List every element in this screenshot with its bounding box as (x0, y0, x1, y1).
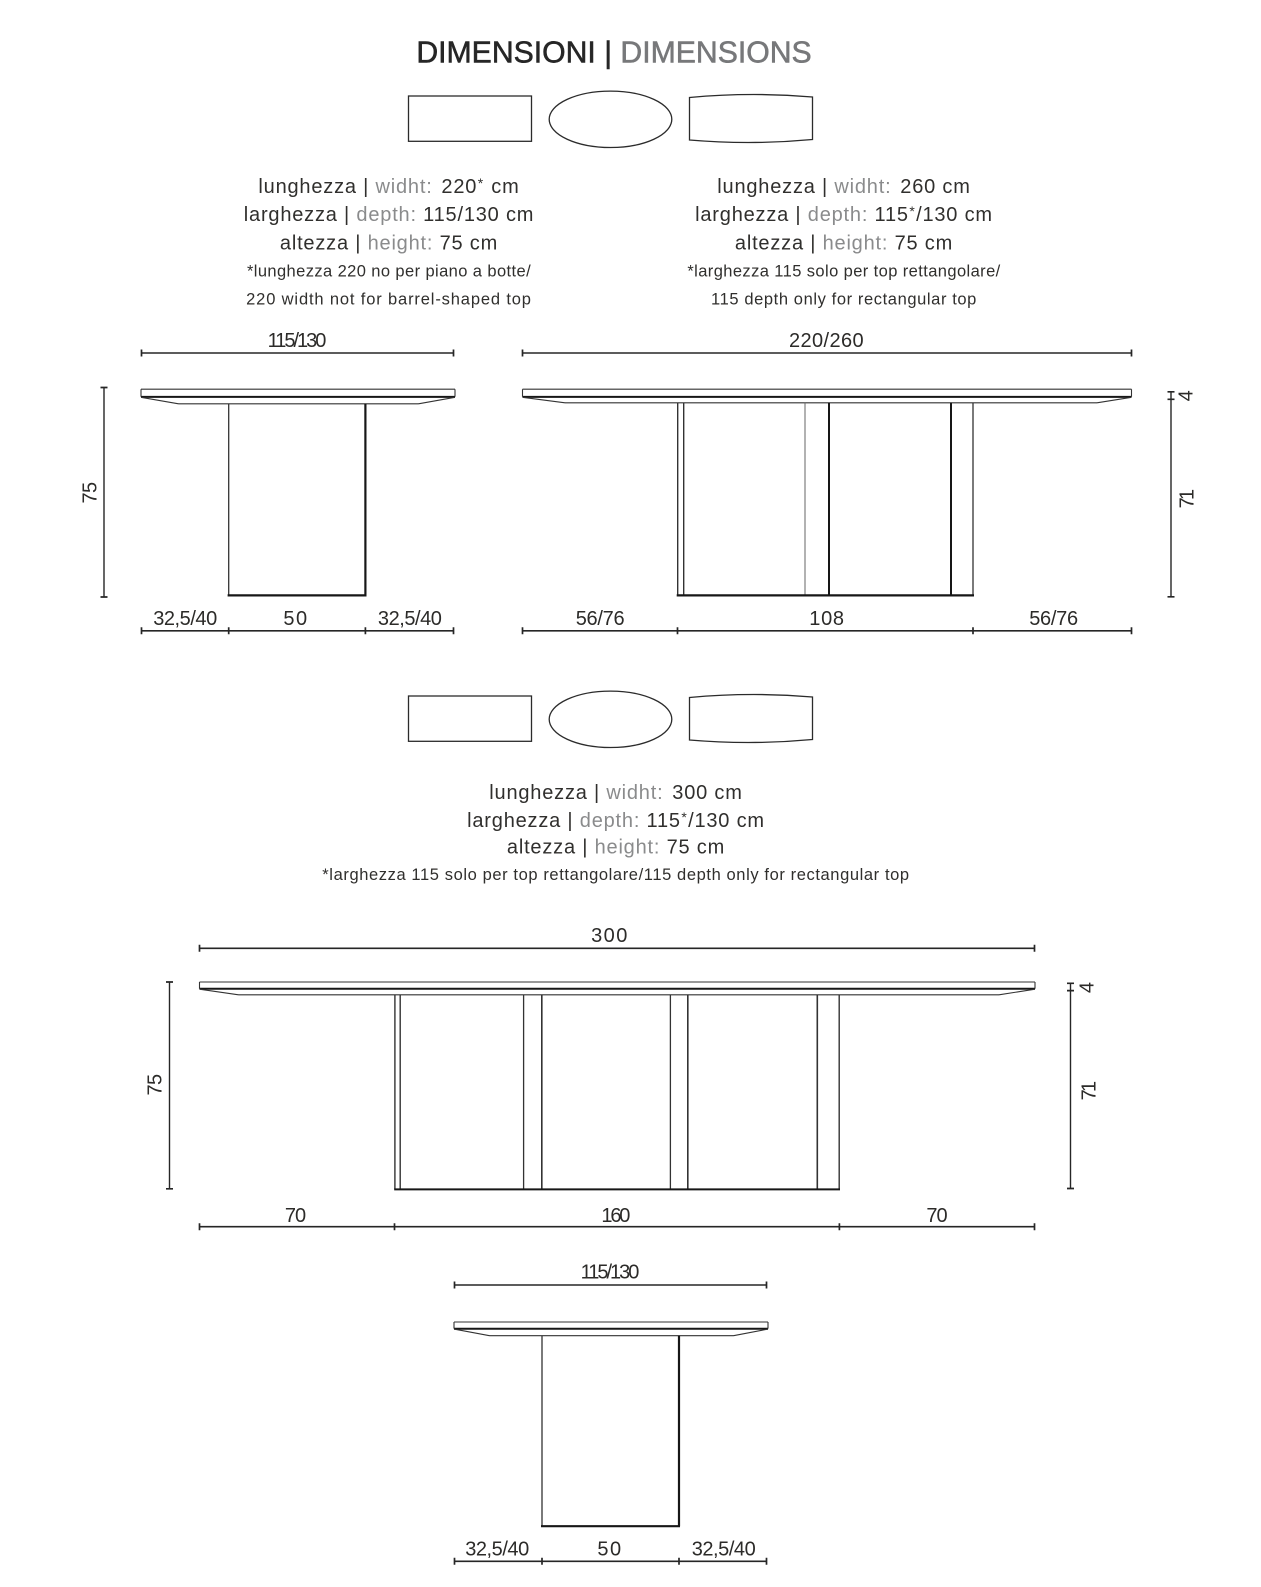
svg-text:71: 71 (1079, 1081, 1101, 1100)
svg-text:32,5/40: 32,5/40 (692, 1539, 756, 1561)
svg-text:71: 71 (1177, 489, 1199, 508)
svg-text:160: 160 (601, 1205, 630, 1227)
svg-text:lunghezza | widht: 300 cm: lunghezza | widht: 300 cm (489, 782, 742, 804)
svg-text:altezza | height: 75 cm: altezza | height: 75 cm (735, 232, 953, 254)
svg-text:altezza | height: 75 cm: altezza | height: 75 cm (280, 232, 498, 254)
svg-text:115 depth only for rectangular: 115 depth only for rectangular top (711, 291, 977, 309)
svg-text:108: 108 (809, 608, 844, 630)
svg-text:75: 75 (80, 482, 102, 504)
svg-text:50: 50 (597, 1539, 622, 1561)
svg-text:larghezza | depth: 115/130 cm: larghezza | depth: 115/130 cm (244, 204, 534, 226)
svg-text:32,5/40: 32,5/40 (153, 608, 217, 630)
svg-text:56/76: 56/76 (576, 608, 625, 630)
svg-text:DIMENSIONI | DIMENSIONS: DIMENSIONI | DIMENSIONS (416, 37, 811, 70)
svg-text:*lunghezza 220 no per piano a: *lunghezza 220 no per piano a botte/ (247, 263, 531, 281)
svg-text:70: 70 (926, 1205, 947, 1227)
svg-text:50: 50 (283, 608, 308, 630)
svg-text:lunghezza | widht: 260 cm: lunghezza | widht: 260 cm (717, 176, 970, 198)
svg-text:32,5/40: 32,5/40 (378, 608, 442, 630)
svg-text:lunghezza | widht: 220* cm: lunghezza | widht: 220* cm (258, 175, 519, 198)
svg-text:56/76: 56/76 (1029, 608, 1078, 630)
svg-text:larghezza | depth: 115*/130 cm: larghezza | depth: 115*/130 cm (467, 809, 765, 832)
svg-text:115/130: 115/130 (268, 330, 327, 352)
svg-text:32,5/40: 32,5/40 (465, 1539, 529, 1561)
svg-text:75: 75 (145, 1074, 167, 1096)
svg-text:*larghezza 115 solo per top re: *larghezza 115 solo per top rettangolare… (322, 866, 909, 884)
svg-text:70: 70 (285, 1205, 306, 1227)
svg-text:4: 4 (1077, 982, 1099, 993)
svg-text:220 width not for barrel-shape: 220 width not for barrel-shaped top (246, 291, 532, 309)
svg-text:larghezza | depth: 115*/130 cm: larghezza | depth: 115*/130 cm (695, 203, 993, 226)
svg-text:altezza | height: 75 cm: altezza | height: 75 cm (507, 837, 725, 859)
svg-text:220/260: 220/260 (789, 330, 864, 352)
svg-text:*larghezza 115 solo per top re: *larghezza 115 solo per top rettangolare… (687, 263, 1000, 281)
svg-text:4: 4 (1176, 390, 1198, 401)
svg-text:115/130: 115/130 (581, 1262, 640, 1284)
svg-text:300: 300 (591, 925, 629, 947)
